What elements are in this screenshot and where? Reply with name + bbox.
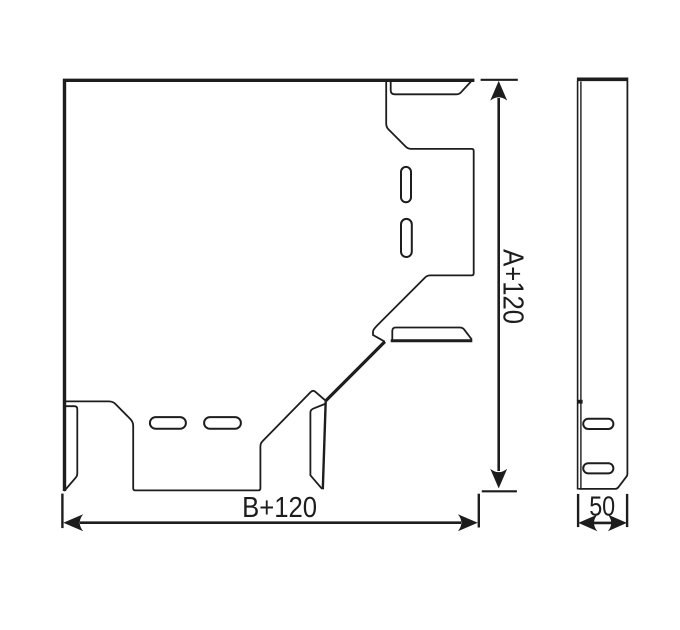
svg-text:B+120: B+120 (242, 492, 317, 524)
svg-text:50: 50 (589, 490, 615, 521)
svg-text:A+120: A+120 (497, 249, 529, 324)
